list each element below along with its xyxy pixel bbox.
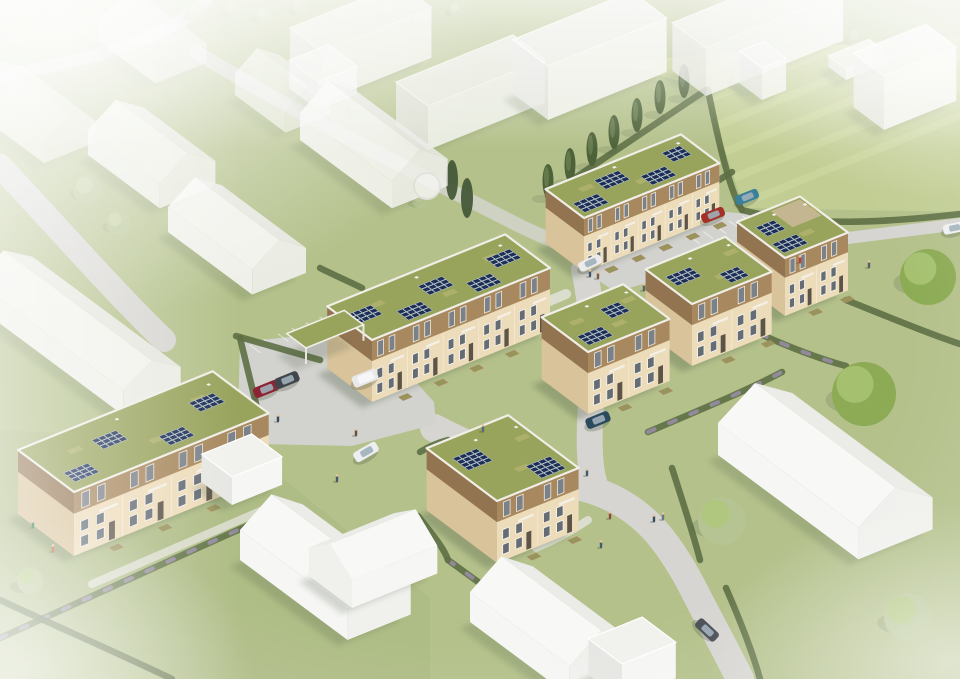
scene-canvas	[0, 0, 960, 679]
haze-overlay	[0, 0, 960, 679]
aerial-site-rendering	[0, 0, 960, 679]
vignette	[0, 0, 960, 679]
